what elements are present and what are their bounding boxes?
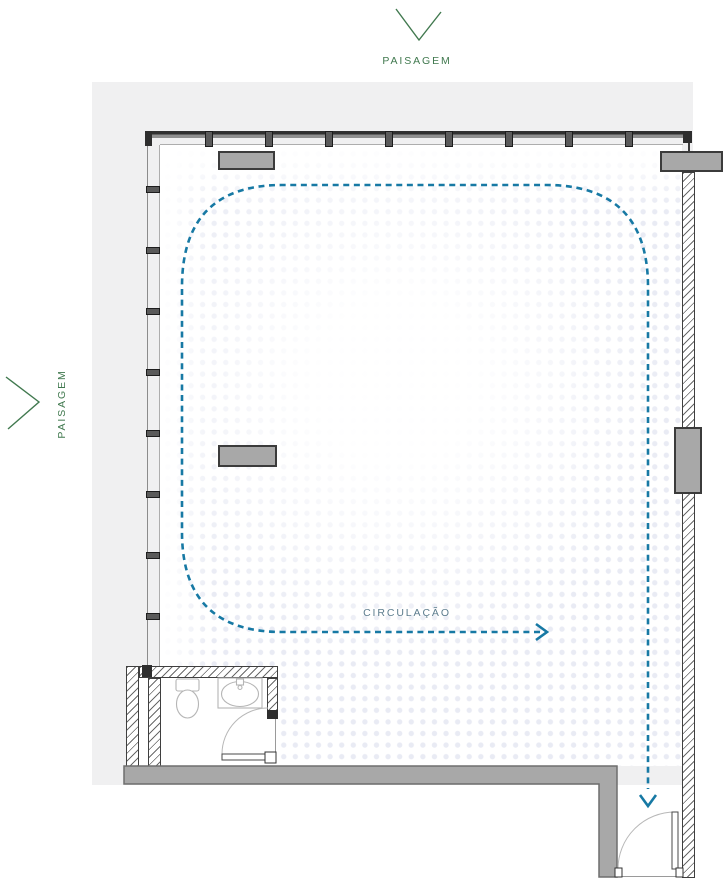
window-mullion (146, 308, 160, 315)
window-mullion (146, 369, 160, 376)
bathroom-door-closed-line (275, 719, 276, 755)
entry-door-jamb (615, 868, 622, 877)
window-mullion (146, 430, 160, 437)
window-mullion (146, 491, 160, 498)
window-mullion (146, 186, 160, 193)
window-mullion (325, 131, 333, 147)
bathroom-left-outer-wall (126, 666, 139, 768)
bathroom-top-wall (139, 666, 278, 678)
column-top-right (660, 151, 723, 172)
bathroom-door-jamb (267, 710, 278, 719)
window-mullion (205, 131, 213, 147)
left-wall-outer-line (147, 131, 148, 668)
window-mullion (265, 131, 273, 147)
arrow-down-icon (640, 795, 656, 806)
window-mullion (145, 131, 152, 146)
window-mullion (505, 131, 513, 147)
window-mullion (146, 552, 160, 559)
wall-cabinet-left (218, 445, 277, 467)
window-mullion (445, 131, 453, 147)
top-wall (145, 131, 683, 138)
window-mullion (385, 131, 393, 147)
window-mullion (146, 613, 160, 620)
bathroom-corner-post (142, 665, 152, 677)
paisagem-label-left: PAISAGEM (56, 344, 68, 464)
bathroom-left-inner-wall (148, 678, 161, 768)
column-mid-right (674, 427, 702, 494)
bathroom-right-wall (267, 678, 278, 713)
floor-plan: PAISAGEM PAISAGEM CIRCULAÇÃO (0, 0, 727, 894)
entry-door-leaf (672, 812, 678, 869)
top-wall-inner-line (160, 144, 683, 145)
window-mullion (625, 131, 633, 147)
paisagem-label-top: PAISAGEM (357, 55, 477, 67)
circulacao-label: CIRCULAÇÃO (327, 607, 487, 619)
right-wall (682, 172, 695, 878)
window-mullion (146, 247, 160, 254)
chevron-down-icon (396, 9, 441, 40)
wall-cabinet-top (218, 151, 275, 170)
top-wall-end-block (683, 131, 692, 143)
left-wall-inner-line (159, 145, 160, 668)
window-mullion (565, 131, 573, 147)
entry-door-swing-arc (618, 812, 675, 869)
chevron-right-icon (6, 377, 39, 429)
